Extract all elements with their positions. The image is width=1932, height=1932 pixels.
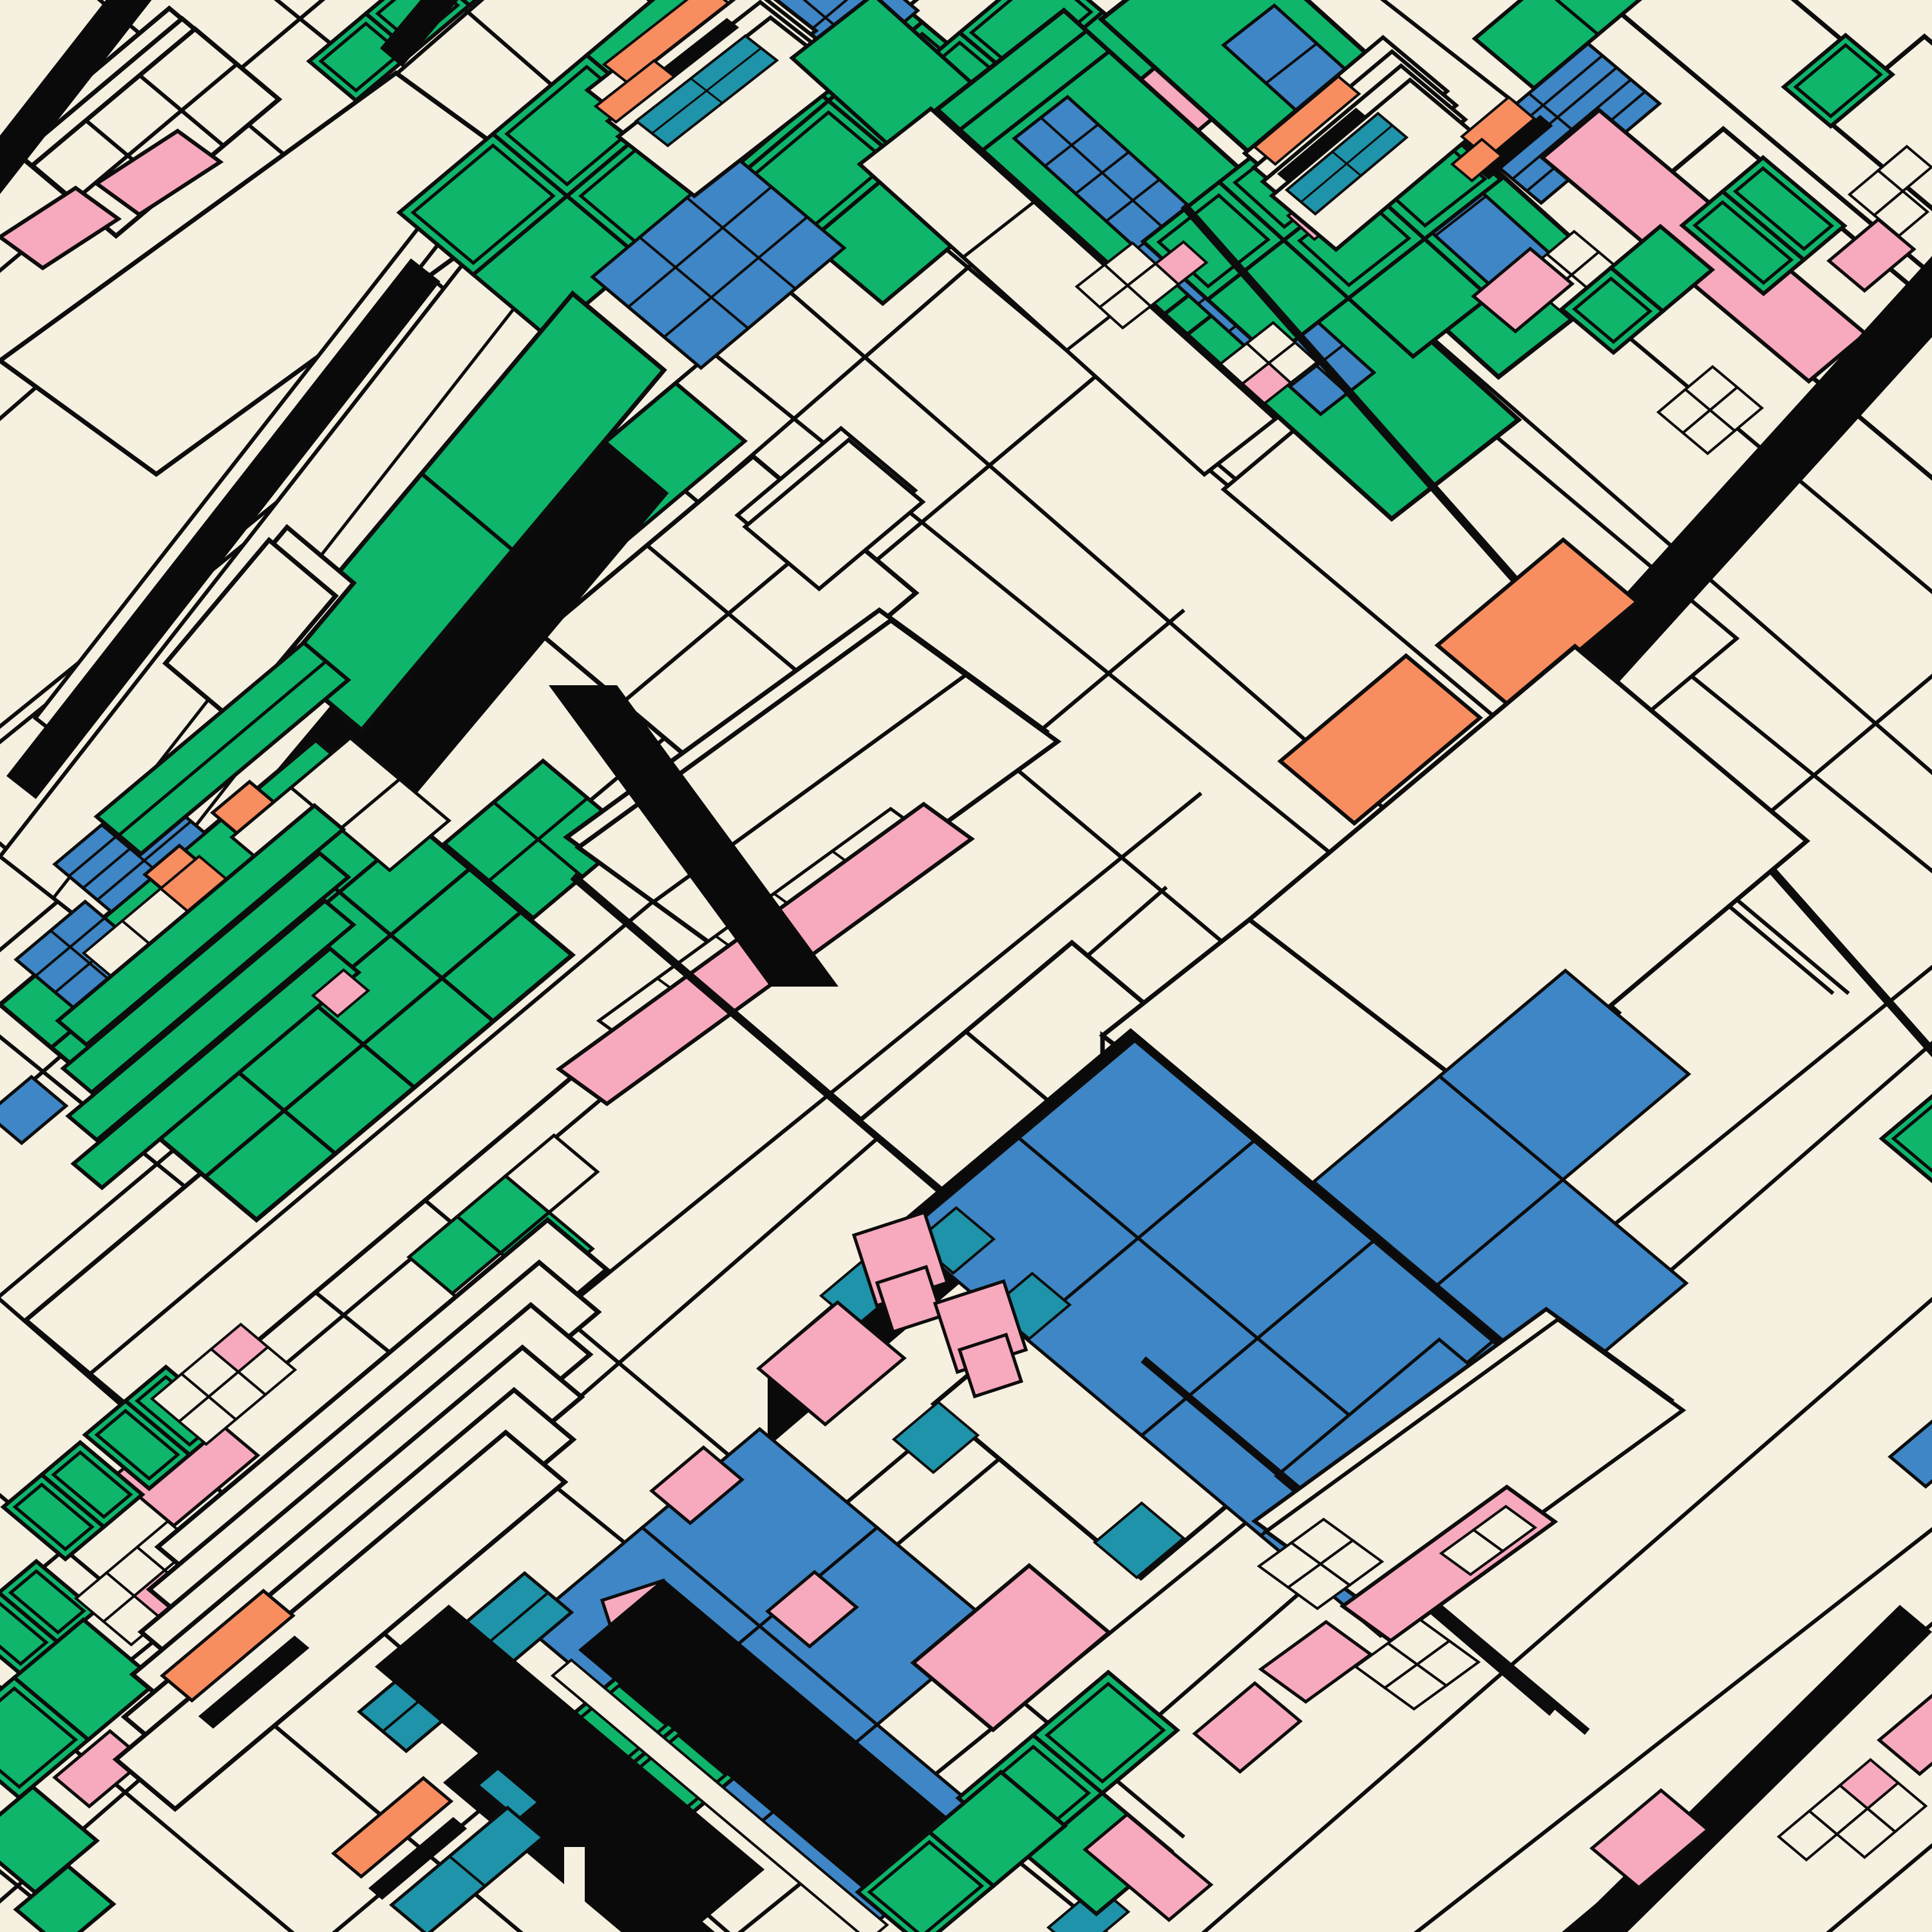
white-notch (564, 1847, 585, 1932)
green-cells (1882, 1087, 1932, 1193)
blue-cell (1890, 1414, 1932, 1487)
small-grid (1658, 366, 1762, 453)
art-stage (0, 0, 1932, 1932)
pink-cell (1261, 1622, 1371, 1702)
pink-cell (1592, 1790, 1708, 1888)
pink-cell (1879, 1694, 1932, 1774)
small-grid (1779, 1759, 1926, 1860)
blue-cell (0, 1077, 66, 1143)
generative-artwork (0, 0, 1932, 1932)
pink-cell (1195, 1683, 1300, 1772)
orange-strip (334, 1778, 451, 1877)
